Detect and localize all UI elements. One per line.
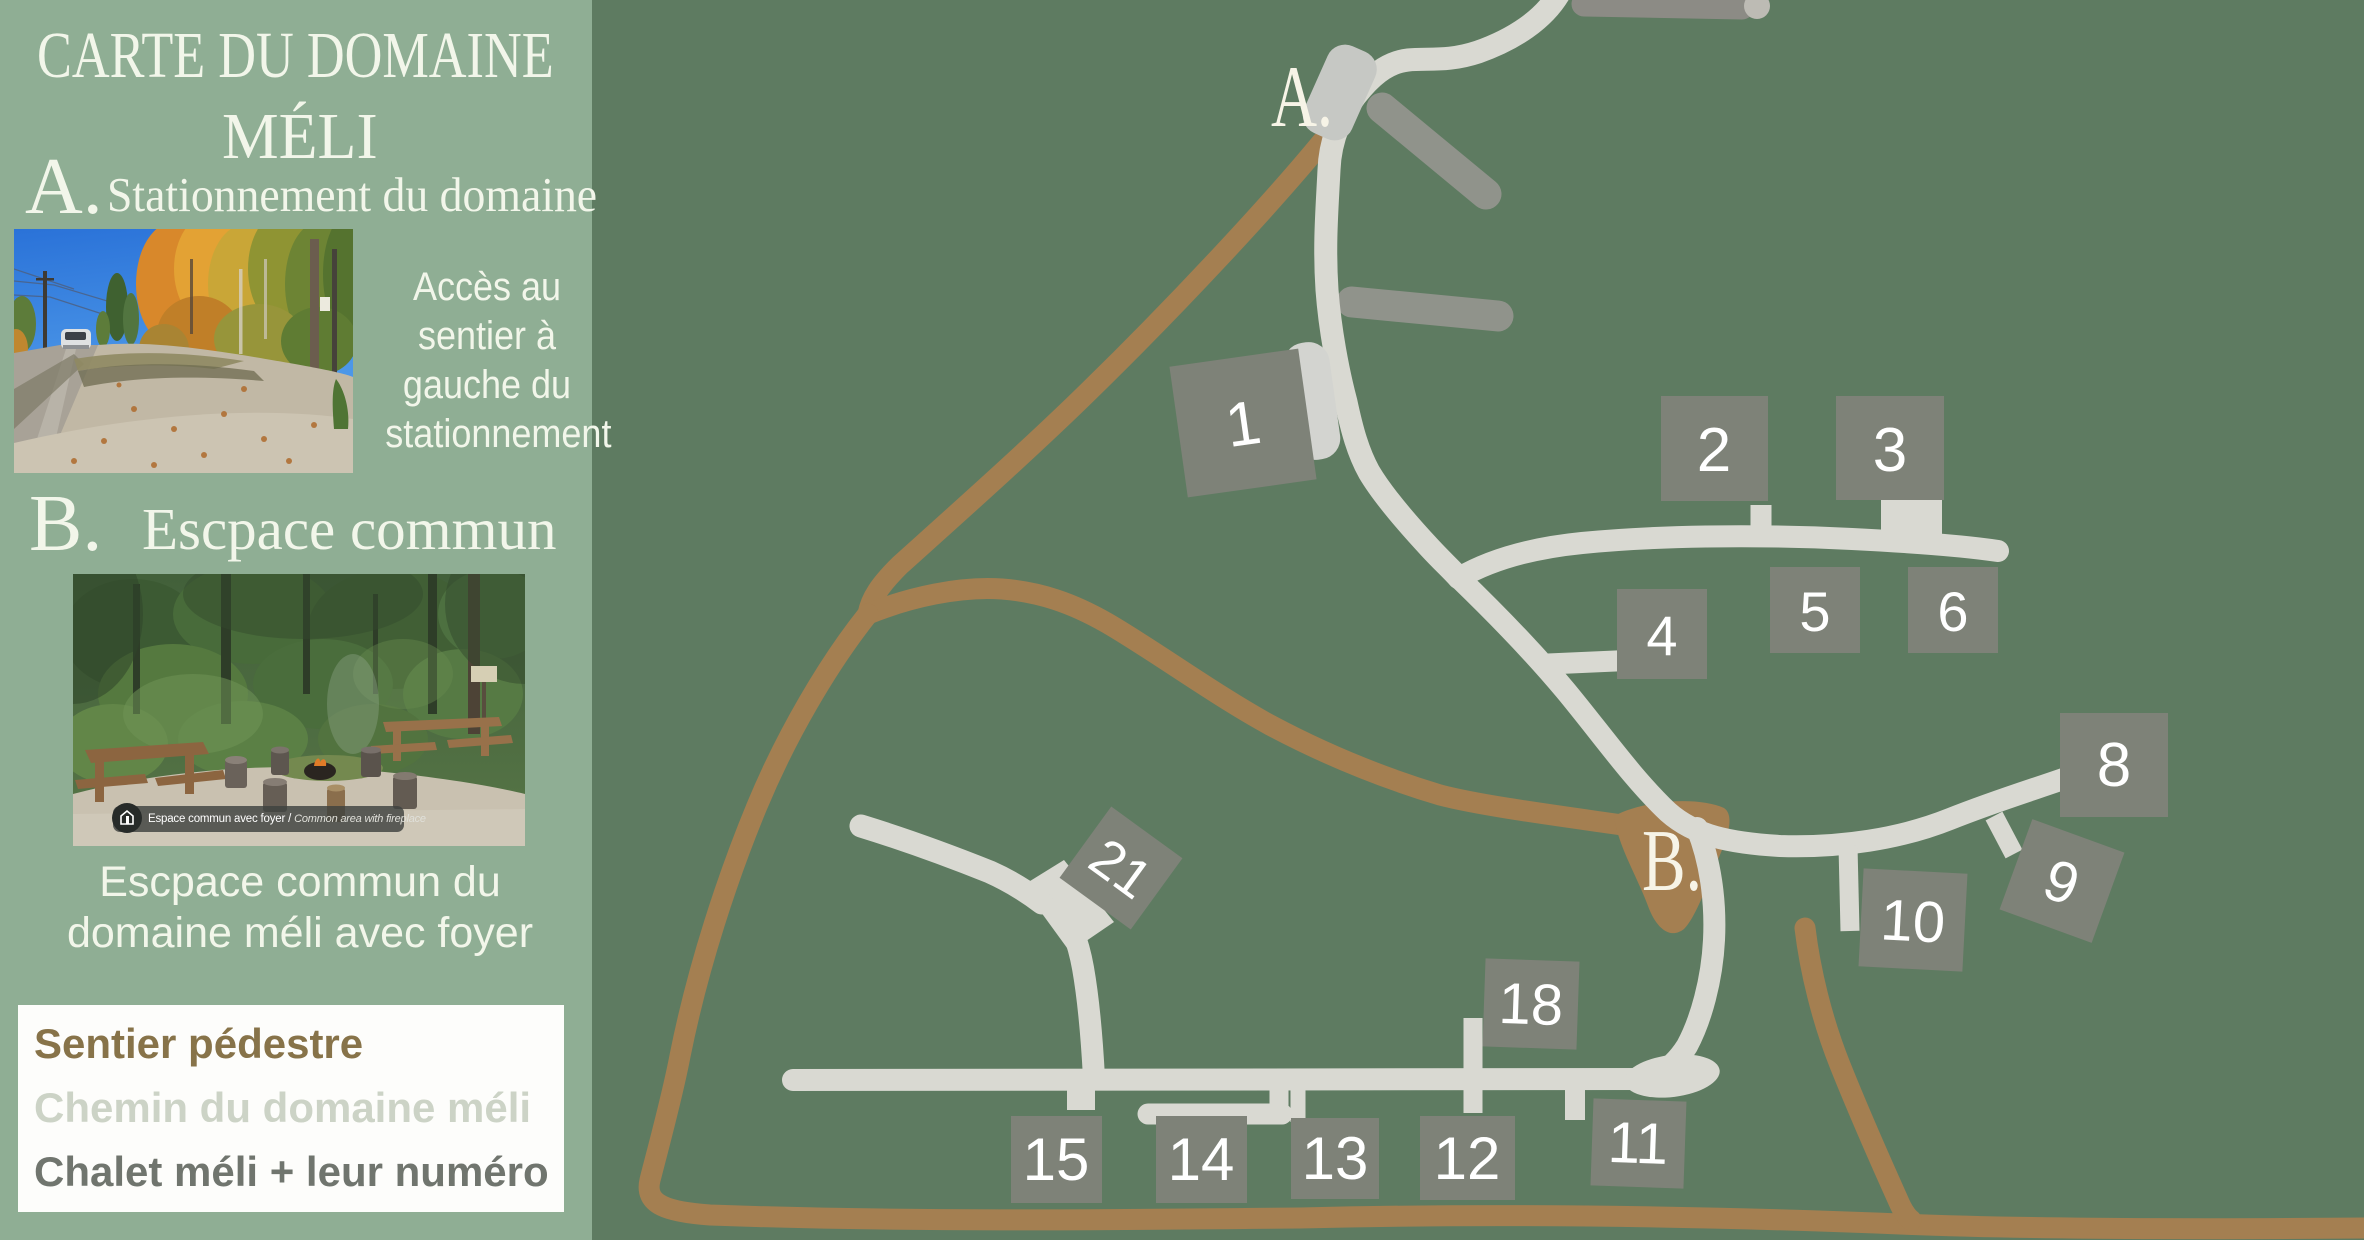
svg-text:5: 5 — [1799, 580, 1830, 643]
svg-text:3: 3 — [1873, 416, 1907, 485]
svg-text:8: 8 — [2097, 731, 2131, 800]
svg-text:11: 11 — [1607, 1110, 1669, 1177]
svg-text:12: 12 — [1434, 1125, 1501, 1192]
svg-text:Espace commun avec foyer / Com: Espace commun avec foyer / Common area w… — [148, 813, 426, 825]
svg-text:A.: A. — [1271, 49, 1333, 146]
svg-text:14: 14 — [1168, 1126, 1235, 1193]
svg-text:B.: B. — [1642, 813, 1702, 910]
svg-text:15: 15 — [1023, 1126, 1090, 1193]
svg-text:6: 6 — [1937, 580, 1968, 643]
svg-text:10: 10 — [1879, 887, 1947, 955]
svg-text:4: 4 — [1646, 604, 1677, 667]
svg-text:13: 13 — [1302, 1125, 1369, 1192]
svg-text:2: 2 — [1697, 416, 1731, 485]
svg-text:18: 18 — [1498, 971, 1565, 1038]
